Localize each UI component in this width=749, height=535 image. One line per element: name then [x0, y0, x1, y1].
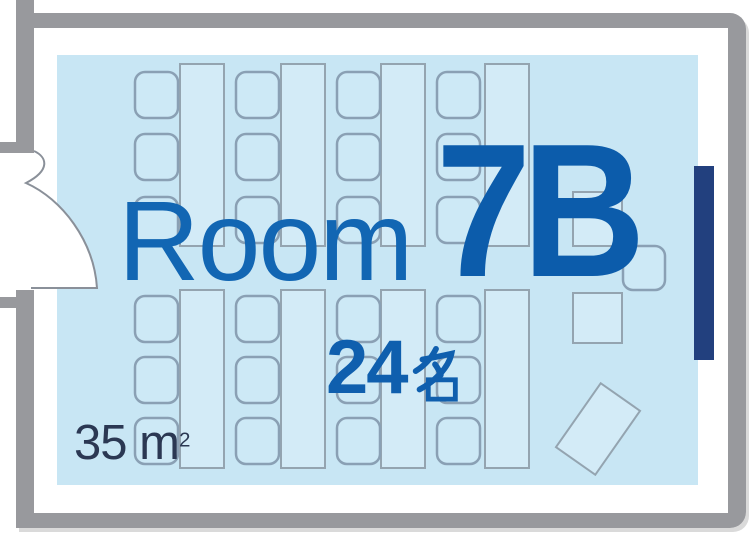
- wall-branch-lower: [0, 297, 16, 308]
- wall-left-lower: [16, 290, 34, 528]
- wall-branch-upper: [0, 142, 16, 153]
- area-unit: m: [139, 416, 179, 470]
- capacity-value: 24: [326, 330, 407, 406]
- area-value: 35: [74, 416, 127, 470]
- capacity-label: 24: [326, 330, 460, 406]
- area-superscript: 2: [179, 428, 190, 451]
- floor-plan: Room 7B 24 35 m2: [0, 0, 749, 535]
- wall-left-upper: [16, 0, 34, 153]
- capacity-unit-glyph-mei: [412, 345, 460, 403]
- room-title-label: Room: [118, 185, 411, 298]
- room-number: 7B: [436, 116, 637, 306]
- wall-screen: [694, 166, 714, 360]
- area-label: 35 m2: [74, 419, 190, 468]
